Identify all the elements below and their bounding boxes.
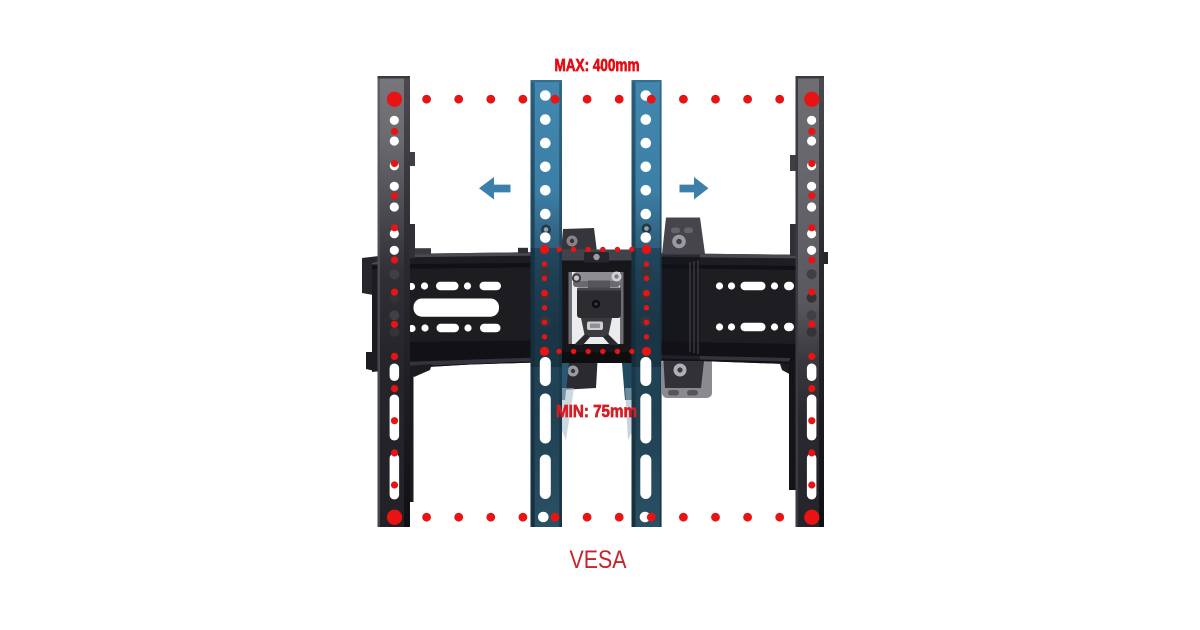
svg-text:VESA: VESA [570, 546, 627, 574]
svg-text:MIN: 75mm: MIN: 75mm [556, 401, 637, 421]
svg-text:MAX: 400mm: MAX: 400mm [555, 55, 640, 75]
